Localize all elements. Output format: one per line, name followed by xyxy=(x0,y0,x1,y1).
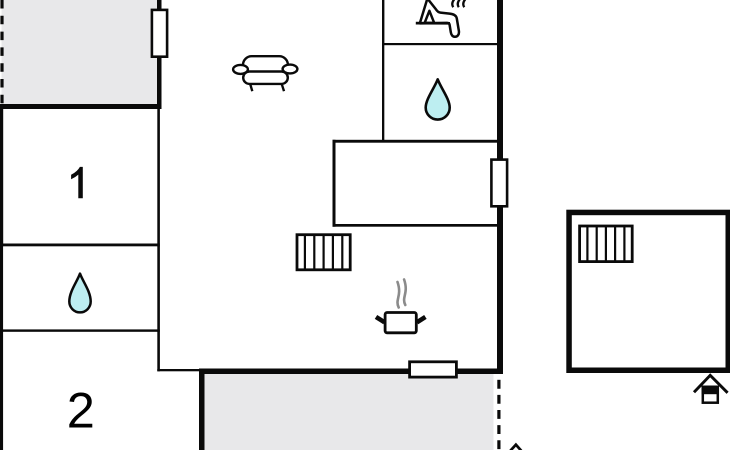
svg-text:2: 2 xyxy=(67,382,95,439)
